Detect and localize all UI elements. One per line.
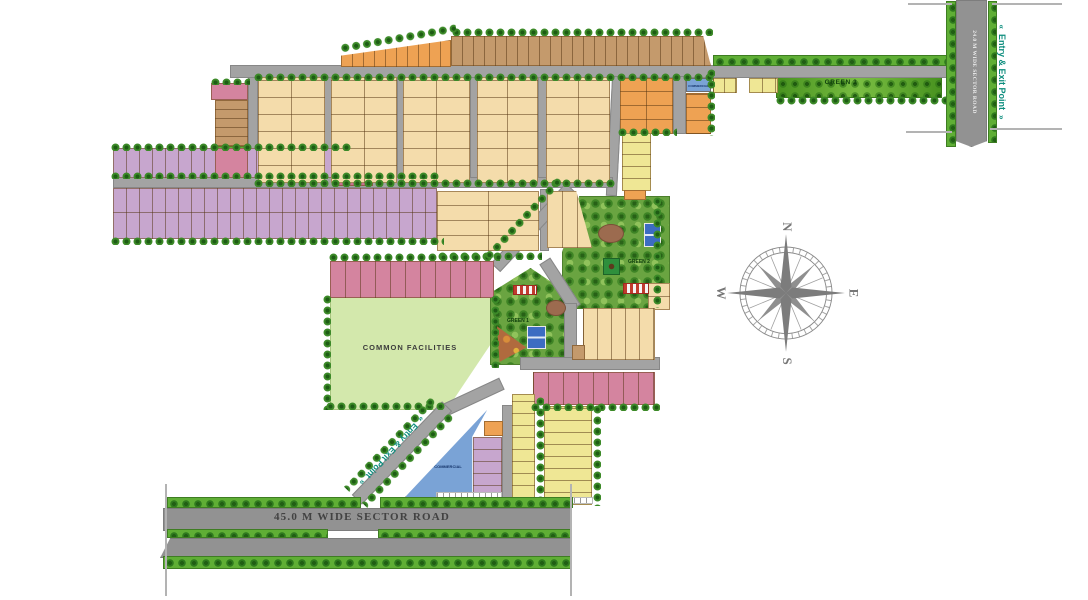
plot-left-brown (215, 100, 248, 146)
road-edge-tick (908, 3, 952, 5)
tree-row (110, 236, 444, 245)
compass-south-label: S (780, 358, 794, 365)
tree-row (378, 529, 571, 538)
chevron-up-icon: « (997, 25, 1006, 29)
chevron-down-icon: » (997, 115, 1006, 119)
tree-row (617, 127, 677, 136)
tree-row (253, 72, 715, 81)
plot-yellow-top-a (713, 78, 737, 93)
plot-left-pink-top (211, 83, 248, 100)
tennis-court-green1 (527, 326, 546, 349)
road-sector-24 (956, 0, 987, 147)
road-edge-tick (165, 484, 167, 596)
plot-orange-small (624, 190, 646, 200)
playground-green2 (598, 224, 624, 243)
entry-exit-point-top-text: Entry & Exit Point (997, 34, 1007, 110)
compass-rose-icon: N E S W (712, 212, 860, 374)
tree-row (946, 1, 956, 147)
plot-orange-entry (484, 421, 503, 436)
road-edge-tick (906, 131, 952, 133)
plot-purple-col (473, 437, 502, 498)
plot-cream-b3 (403, 77, 470, 183)
plot-yellow-top-b (749, 78, 778, 93)
plot-cream-b1 (258, 77, 325, 183)
plot-pink-south-row (533, 372, 655, 405)
road-edge-tick (990, 128, 1062, 130)
road-edge-tick (570, 484, 572, 596)
entry-exit-point-top-label: «Entry & Exit Point» (997, 16, 1007, 128)
site-plan-canvas: 45.0 M WIDE SECTOR ROAD 24.0 M WIDE SECT… (0, 0, 1088, 600)
plot-purple-row2 (113, 188, 437, 239)
road-edge-tick (992, 3, 1062, 5)
plot-pink-mid-row (330, 261, 494, 298)
kiosk-green2 (603, 258, 620, 275)
tree-row (535, 396, 544, 502)
pond-green1 (546, 300, 566, 316)
plot-orange-block (620, 78, 673, 134)
tree-row (775, 95, 947, 105)
plot-brown-top-row (451, 36, 711, 66)
plot-yellow-block-b (544, 406, 592, 505)
compass-west-label: W (714, 287, 728, 300)
compass-east-label: E (846, 289, 860, 298)
tree-row (322, 294, 331, 410)
road-sector-45-south (160, 538, 572, 558)
tree-row (490, 294, 499, 368)
tree-row (706, 68, 715, 136)
plot-cream-b2 (331, 77, 397, 183)
compass-north-label: N (780, 222, 794, 232)
tree-row (167, 529, 328, 538)
road-orange-right (673, 76, 686, 134)
road-sector-45-north (163, 508, 572, 531)
tree-row (210, 77, 250, 85)
plot-yellow-col (622, 133, 651, 191)
shed-green2 (623, 283, 649, 294)
tree-row (380, 497, 573, 508)
tree-row (110, 142, 352, 151)
plot-cream-b5 (546, 77, 610, 183)
tree-row (988, 1, 997, 143)
tree-row (713, 55, 953, 66)
tree-row (163, 556, 572, 569)
plot-cream-b4 (477, 77, 538, 183)
tree-row (167, 497, 361, 508)
shed-green1 (513, 285, 537, 295)
plot-cream-c (583, 308, 655, 360)
tree-row (328, 252, 500, 261)
tree-row (592, 404, 601, 506)
plot-brown-small (572, 345, 585, 360)
tree-row (652, 196, 661, 308)
tree-row (110, 171, 440, 179)
tree-row (451, 27, 713, 36)
